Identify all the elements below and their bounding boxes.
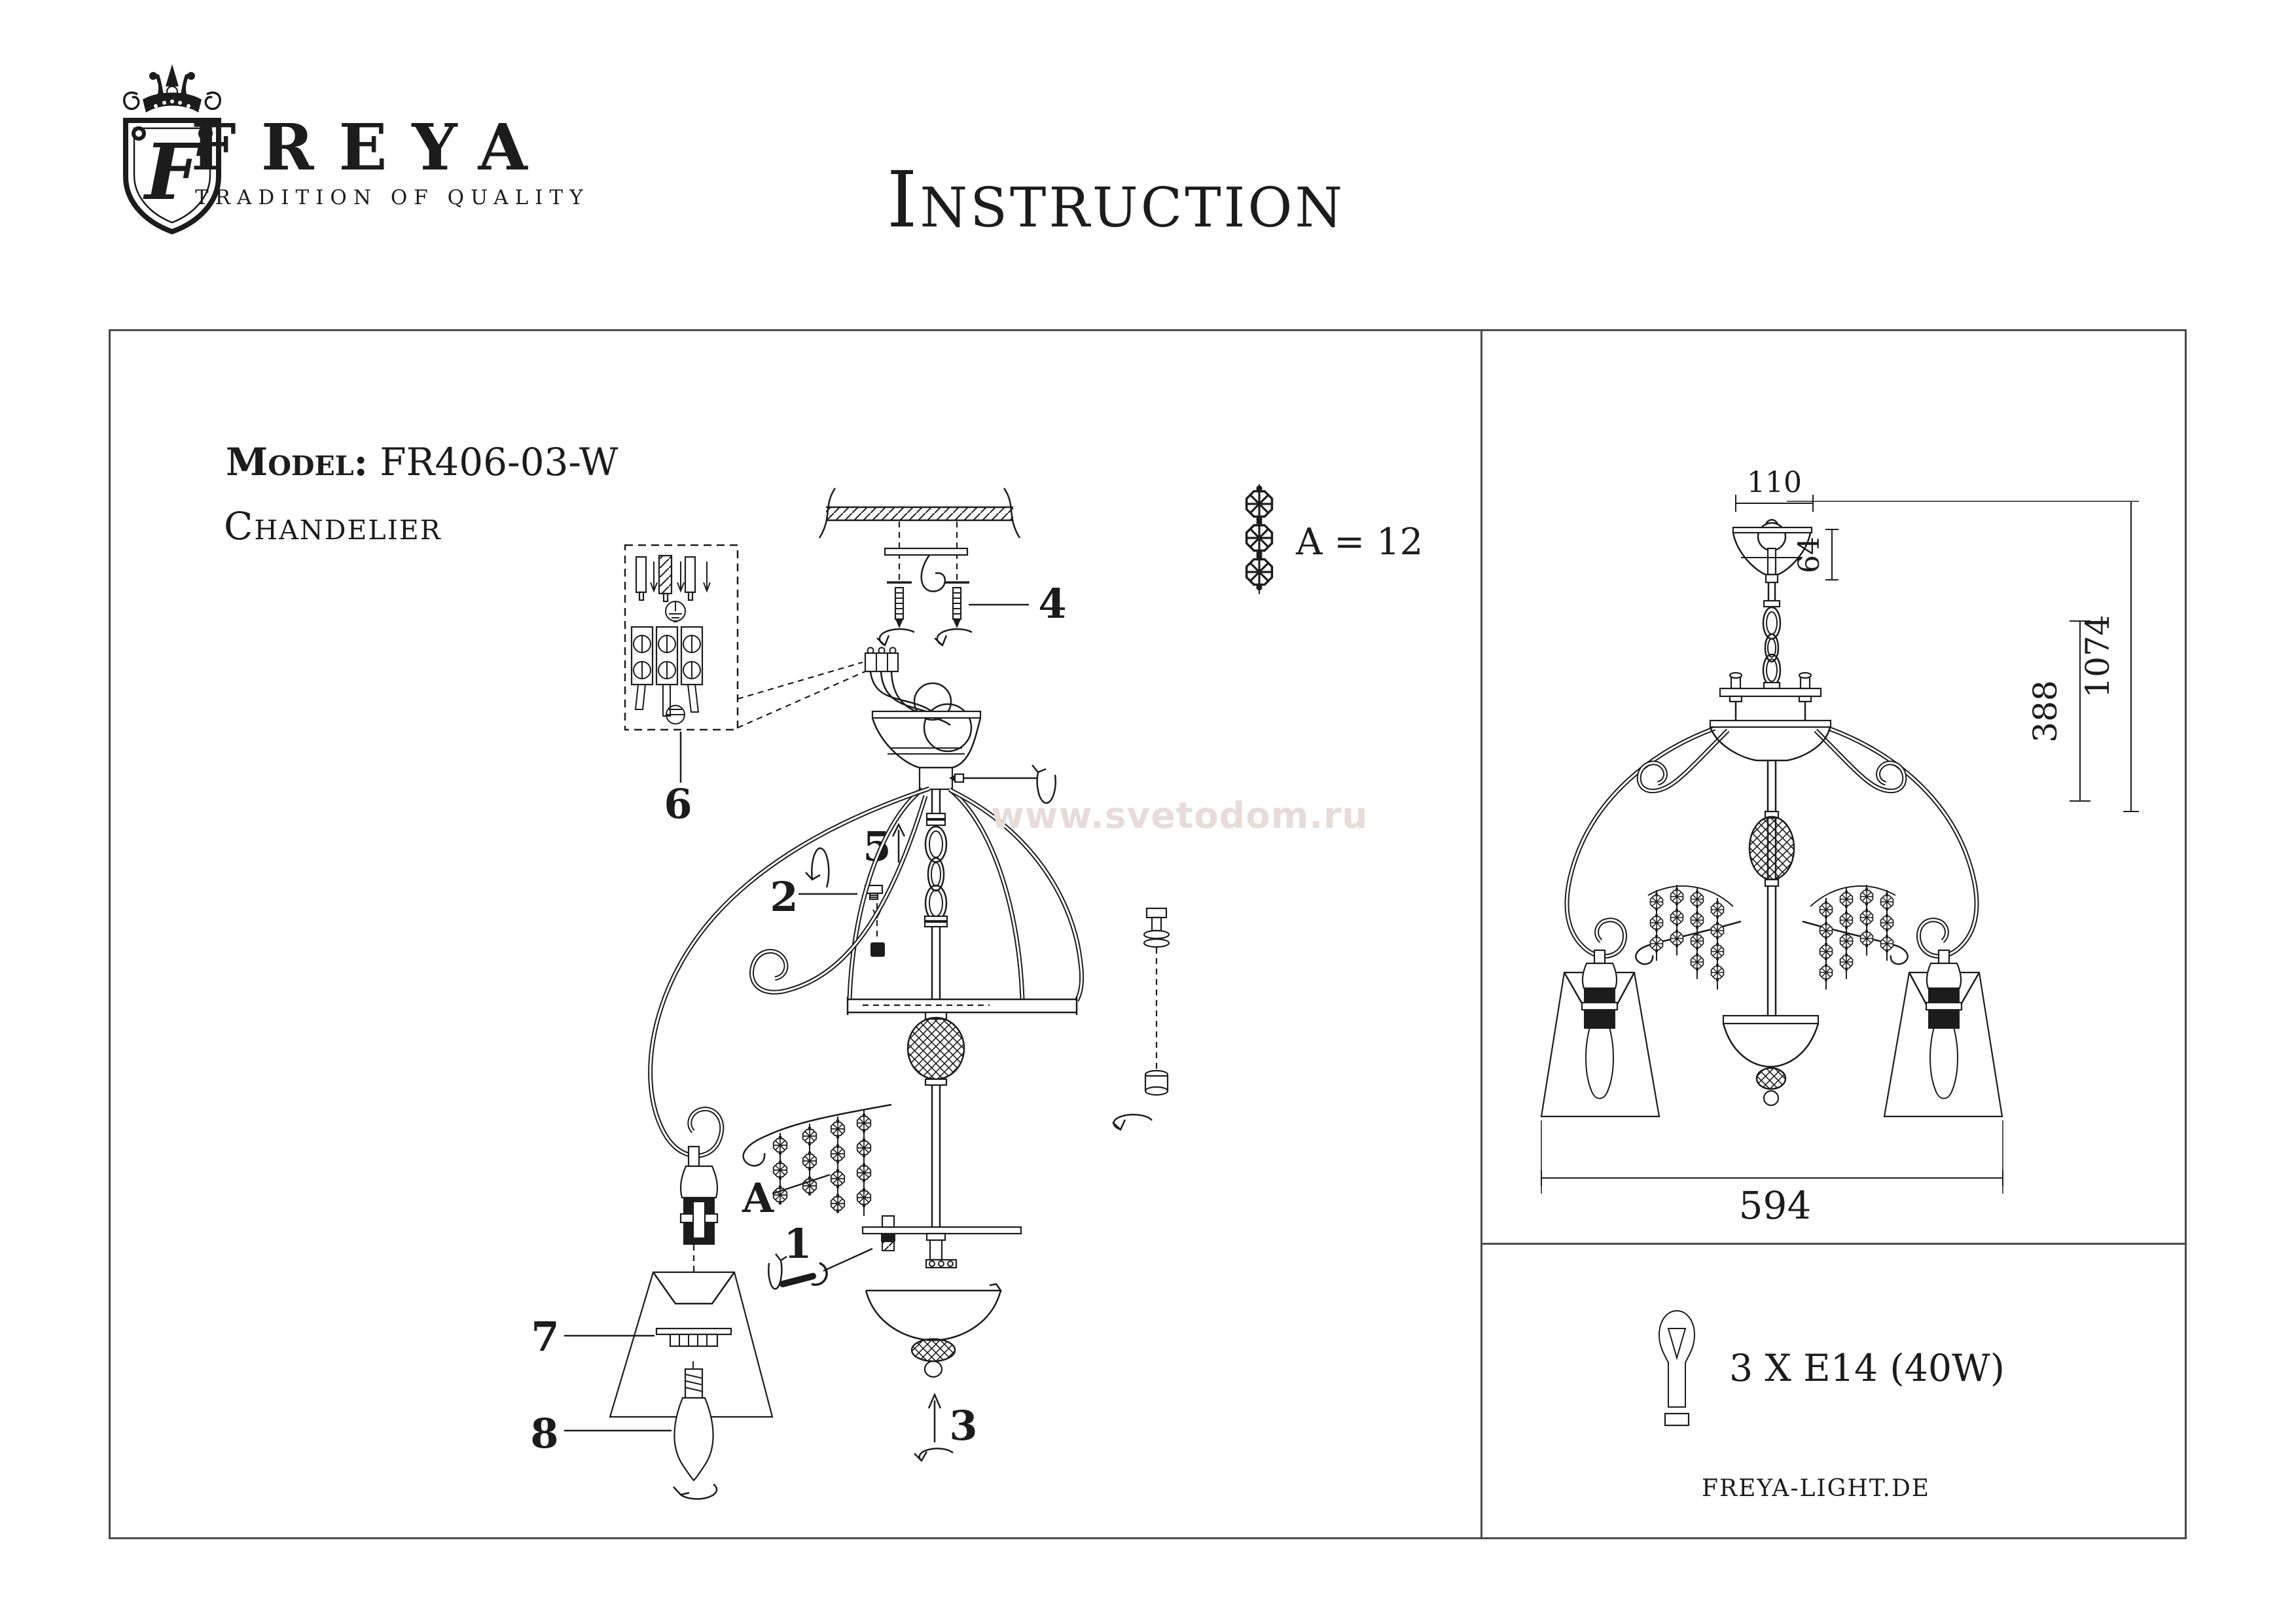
crown-icon xyxy=(124,64,221,113)
part-label-3: 3 xyxy=(949,1402,977,1450)
svg-text:110: 110 xyxy=(1747,466,1802,499)
crystal-count: A = 12 xyxy=(1295,521,1423,563)
terminal-block xyxy=(865,648,898,672)
dimension-drawing: 110 64 1074 388 594 xyxy=(1480,329,2187,1243)
page-title: Instruction xyxy=(779,154,1453,245)
svg-text:1074: 1074 xyxy=(2079,615,2117,698)
crystal-strands xyxy=(774,1111,870,1216)
stem-and-chain xyxy=(925,789,947,999)
dimension-110: 110 xyxy=(1736,466,1813,512)
part-label-4: 4 xyxy=(1038,580,1066,628)
canopy xyxy=(872,683,1056,803)
crystal-legend: A = 12 xyxy=(1247,484,1424,594)
lamp-socket xyxy=(681,1147,717,1245)
part-label-7: 7 xyxy=(531,1313,559,1361)
wire-connector-detail xyxy=(625,545,865,783)
body-column xyxy=(1710,721,1831,1105)
dimension-594: 594 xyxy=(1541,1120,2003,1228)
chandelier-half xyxy=(1541,728,1741,1116)
shade-ring xyxy=(656,1329,731,1334)
mounting-bracket xyxy=(885,548,967,592)
rotate-arrow-icon xyxy=(877,629,972,645)
bowl-bolt xyxy=(1113,908,1169,1130)
middle-plate xyxy=(848,997,1077,1268)
svg-text:64: 64 xyxy=(1793,537,1826,573)
dimension-64: 64 xyxy=(1793,529,1839,580)
part-label-2: 2 xyxy=(770,873,798,921)
screw-icon xyxy=(666,705,685,724)
dimension-1074: 1074 xyxy=(1787,501,2139,811)
part-label-1: 1 xyxy=(783,1220,812,1268)
svg-text:594: 594 xyxy=(1739,1183,1812,1228)
bottom-bowl xyxy=(866,1284,1001,1461)
set-screw xyxy=(955,774,963,782)
bulb-icon xyxy=(1654,1309,1700,1428)
svg-text:388: 388 xyxy=(2026,680,2064,742)
rotate-arrow-icon xyxy=(673,1484,717,1499)
lamp-spec: 3 X E14 (40W) xyxy=(1729,1347,2005,1390)
ceiling xyxy=(819,488,1020,538)
rotate-arrow-icon xyxy=(1114,1115,1152,1130)
website: FREYA-LIGHT.DE xyxy=(1702,1475,1930,1502)
brand-tagline: TRADITION OF QUALITY xyxy=(195,186,590,209)
hanger-bar xyxy=(1720,673,1821,721)
part-label-6: 6 xyxy=(664,780,692,828)
brand-name: FREYA xyxy=(191,110,552,185)
assembly-diagram: 4 xyxy=(109,329,1480,1539)
part-label-8: 8 xyxy=(530,1410,558,1457)
watermark: www.svetodom.ru xyxy=(991,794,1368,836)
rotate-arrow-icon xyxy=(812,848,829,887)
ground-icon xyxy=(666,601,685,622)
part-label-A: A xyxy=(742,1174,774,1222)
terminal-strip xyxy=(632,627,702,716)
